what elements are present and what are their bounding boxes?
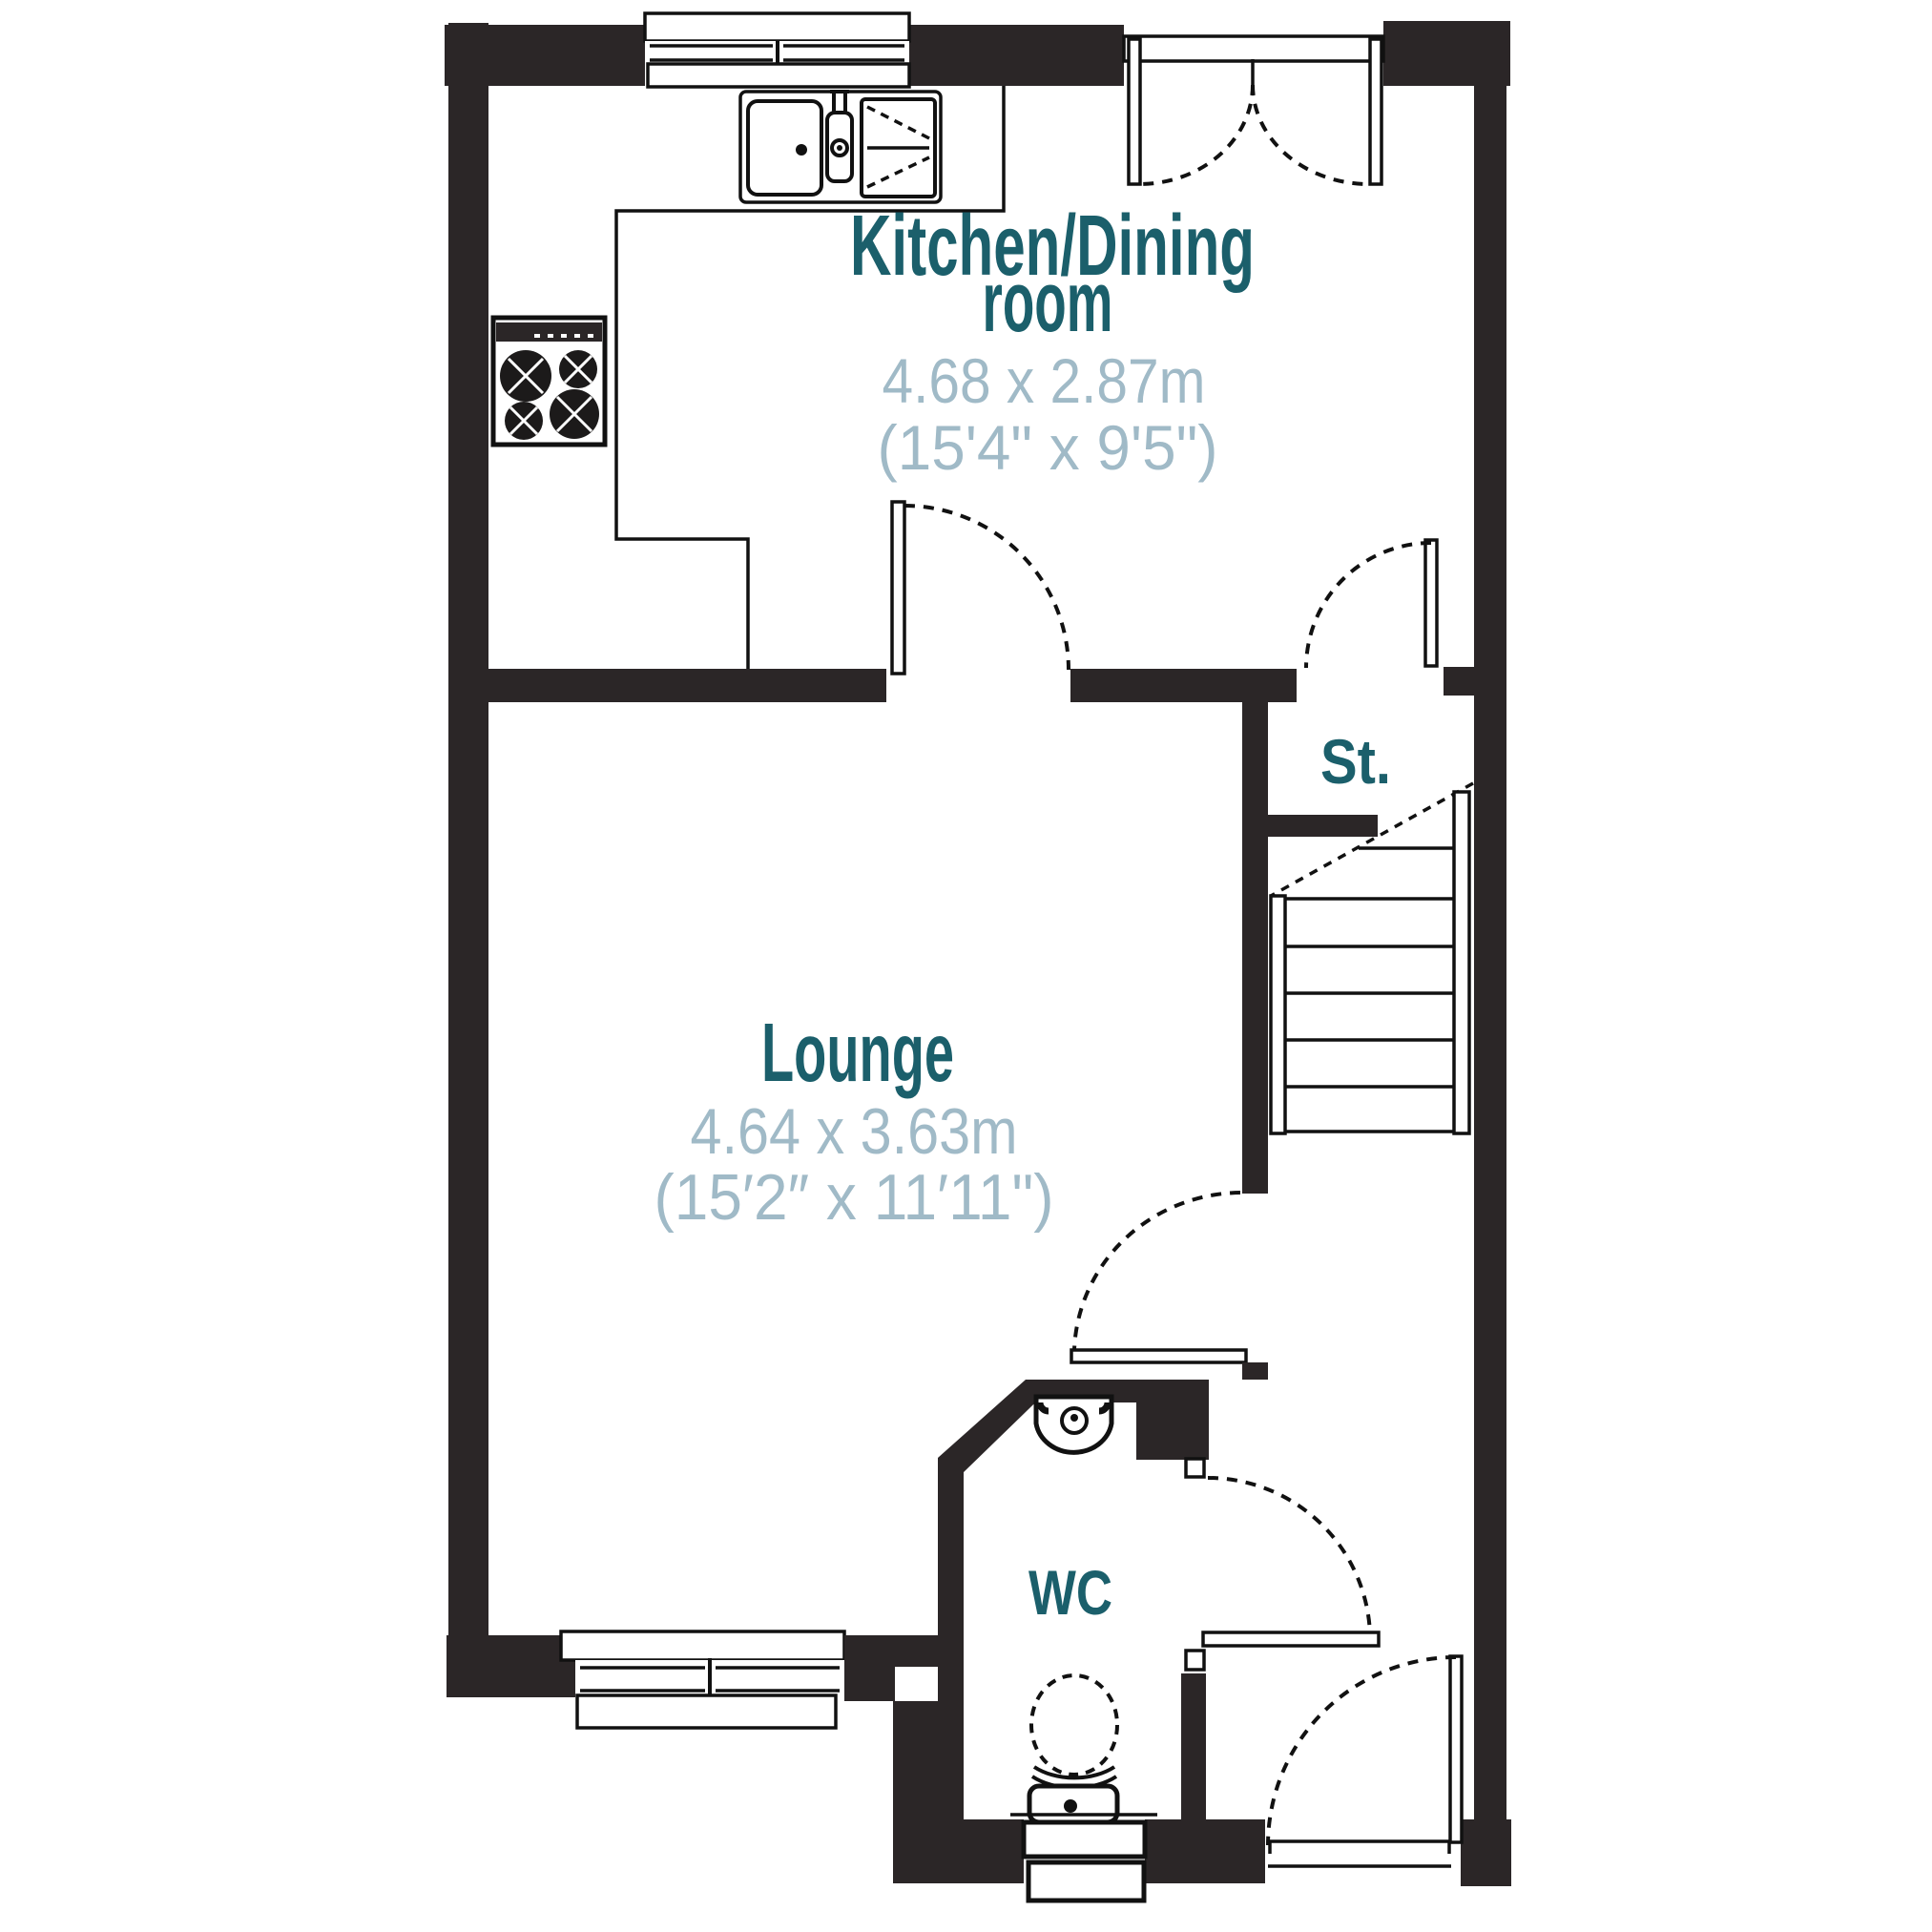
- svg-text:Lounge: Lounge: [761, 1007, 954, 1099]
- svg-text:(15′2″ x 11′11"): (15′2″ x 11′11"): [654, 1161, 1054, 1234]
- svg-text:4.68 x 2.87m: 4.68 x 2.87m: [883, 345, 1206, 416]
- svg-text:room: room: [983, 255, 1113, 350]
- svg-text:St.: St.: [1320, 726, 1391, 797]
- svg-text:4.64 x 3.63m: 4.64 x 3.63m: [691, 1095, 1018, 1168]
- svg-text:WC: WC: [1028, 1557, 1112, 1628]
- svg-text:(15'4" x 9'5"): (15'4" x 9'5"): [878, 412, 1218, 483]
